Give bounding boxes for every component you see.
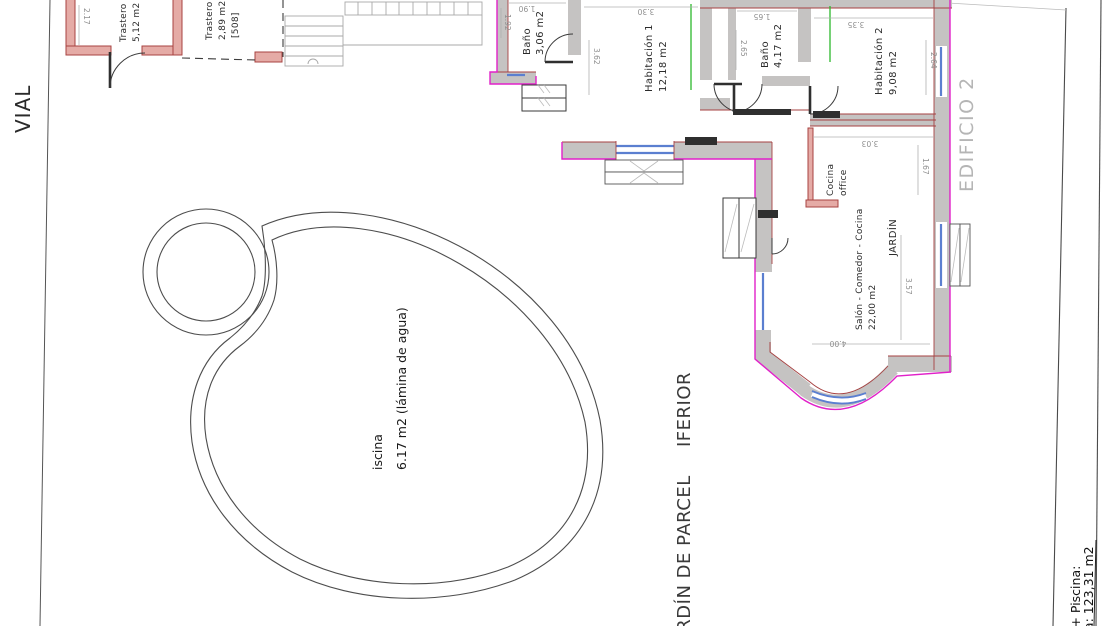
trastero2-name-label: Trastero [205,1,215,41]
swimming-pool: iscina 6.17 m2 (lámina de agua) [143,209,603,598]
trastero-shared-wall [173,0,182,55]
pool-area-label: 6.17 m2 (lámina de agua) [394,307,409,470]
bottom-wall-right [888,356,952,372]
hab2-area-label: 9,08 m2 [888,51,899,95]
top-wall [700,0,952,8]
wing-small-door-arc [772,238,788,254]
trastero1-bottom-wall-left [66,46,111,55]
vent-box [758,210,778,218]
passage-door-arc [810,86,838,114]
lintel-cocina [813,111,840,118]
window-cap-upper [755,264,771,272]
floor-plan-svg: VIAL Trastero 5,12 m2 Trastero 2,89 m2 [… [0,0,1110,626]
corner-leader-line [948,3,1066,10]
summary-block: s + Piscina: da: 123,31 m2 [1068,540,1096,626]
dim-264: 2.64 [929,52,938,69]
south-wing-left-wall [755,142,772,272]
dim-330: 3.30 [637,7,654,16]
dim-362: 3.62 [592,48,601,65]
wing-top-window-backing [616,141,674,160]
exterior-window-boxes [950,224,970,286]
cocina-left-wall [808,128,813,203]
staircase [285,2,482,66]
bano1-bottom-wall [490,72,536,84]
dim-335: 3.35 [847,20,864,29]
shutter-boxes [605,160,683,184]
storage-rooms: Trastero 5,12 m2 Trastero 2,89 m2 [508] … [66,0,283,88]
lintel-hallway [733,109,791,115]
trastero1-left-wall [66,0,75,52]
wall-bano2-hab2 [798,0,811,62]
dim-192: 1.92 [503,14,512,31]
hallway-bottom-stub [700,98,730,110]
garden-label-line2: IFERIOR [674,372,695,447]
cocina-bottom-stub [806,200,838,207]
dim-165: 1.65 [753,12,770,21]
sheet-inner-frame-line [1053,8,1066,626]
lintel-wing [685,137,717,145]
pool-lobe-outer [143,209,269,335]
dim-167: 1.67 [921,158,930,175]
entrance-steps [522,85,566,111]
dim-217-label: 2.17 [82,8,91,25]
pier-bano1-hab1 [568,0,581,55]
pool-name-label: iscina [370,434,385,470]
vial-label: VIAL [11,85,35,133]
bano2-door-arc [734,84,762,112]
closet [723,198,756,258]
floor-plan-page: VIAL Trastero 5,12 m2 Trastero 2,89 m2 [… [0,0,1110,626]
summary-line2: da: 123,31 m2 [1081,546,1096,626]
bano2-name-label: Baño [760,41,771,68]
jardin-label: JARDÍN [886,219,899,257]
hab1-name-label: Habitación 1 [643,24,655,92]
trastero2-dashed-boundary-bottom [182,58,256,60]
vial-boundary-line [40,0,50,626]
bano1-area-label: 3,06 m2 [535,11,546,55]
building-left-wall [497,0,508,75]
sheet-outer-frame-line [1096,0,1101,626]
trastero1-door-arc [110,53,145,88]
bano1-name-label: Baño [522,28,533,55]
edificio-label: EDIFICIO 2 [956,76,978,192]
window-cap-lower [755,330,771,340]
salon-area-label: 22,00 m2 [868,284,878,330]
trastero2-area-label: 2,89 m2 [218,1,228,41]
bano2-bottom-wall [762,76,810,86]
salon-name-label: Salón - Comedor - Cocina [854,208,865,330]
dim-265: 2.65 [739,40,748,57]
bano2-area-label: 4,17 m2 [773,24,784,68]
cocina-office-label1: Cocina [826,164,836,196]
dim-357: 3.57 [904,278,913,295]
garden-label-line1: JARDÍN DE PARCEL [673,475,695,626]
trastero2-wall-stub [255,52,282,62]
bano2-left-wall [728,0,736,80]
hab1-area-label: 12,18 m2 [658,41,669,92]
dim-303: 3.03 [861,139,878,148]
dim-190: 1.90 [518,4,535,13]
hab2-name-label: Habitación 2 [873,27,885,95]
pool-lobe-inner [157,223,255,321]
trastero1-area-label: 5,12 m2 [132,3,142,43]
hab1-right-wall [700,0,712,80]
cocina-office-label2: office [839,169,849,196]
trastero1-name-label: Trastero [119,3,129,43]
dim-400: 4.00 [829,339,846,348]
trastero2-ref-label: [508] [231,12,241,38]
